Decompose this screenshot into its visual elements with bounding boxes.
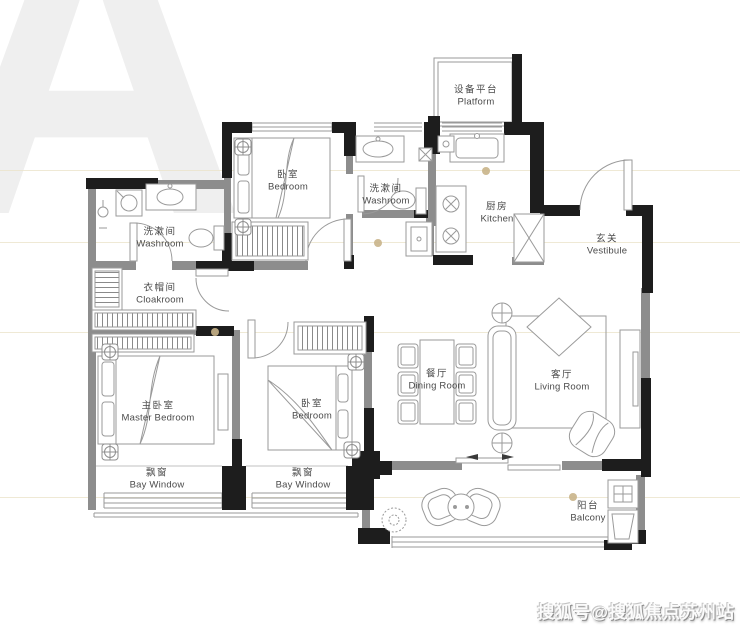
furniture-bedroom-top (232, 138, 330, 260)
room-label-bedroom-second-cn: 卧室 (292, 399, 332, 411)
room-label-bedroom-second: 卧室 Bedroom (292, 399, 332, 422)
room-label-bedroom-second-en: Bedroom (292, 410, 332, 422)
room-label-bedroom-top-cn: 卧室 (268, 170, 308, 182)
room-label-dining-room: 餐厅 Dining Room (408, 369, 465, 392)
room-label-platform-cn: 设备平台 (454, 85, 498, 97)
room-label-master-bedroom-en: Master Bedroom (121, 412, 194, 424)
room-label-bay-window-right-cn: 飘窗 (276, 468, 331, 480)
furniture-bedroom-second (268, 322, 366, 458)
room-label-dining-room-cn: 餐厅 (408, 369, 465, 381)
room-label-balcony-cn: 阳台 (570, 501, 605, 513)
room-label-master-bedroom-cn: 主卧室 (121, 401, 194, 413)
room-label-vestibule: 玄关 Vestibule (587, 234, 627, 257)
floor-plan-page: A (0, 0, 740, 629)
room-label-living-room-cn: 客厅 (534, 370, 589, 382)
room-label-bay-window-left: 飘窗 Bay Window (130, 468, 185, 491)
room-label-washroom-mid-en: Washroom (362, 195, 409, 207)
room-label-washroom-mid: 洗漱间 Washroom (362, 184, 409, 207)
room-label-platform: 设备平台 Platform (454, 85, 498, 108)
room-label-dining-room-en: Dining Room (408, 380, 465, 392)
room-label-cloakroom-cn: 衣帽间 (136, 283, 184, 295)
room-label-cloakroom-en: Cloakroom (136, 294, 184, 306)
room-label-vestibule-en: Vestibule (587, 245, 627, 257)
room-label-bedroom-top-en: Bedroom (268, 181, 308, 193)
room-label-kitchen: 厨房 Kitchen (480, 202, 513, 225)
room-label-vestibule-cn: 玄关 (587, 234, 627, 246)
room-label-kitchen-en: Kitchen (480, 213, 513, 225)
room-label-washroom-left-cn: 洗漱间 (136, 227, 183, 239)
room-label-balcony: 阳台 Balcony (570, 501, 605, 524)
room-label-balcony-en: Balcony (570, 512, 605, 524)
credit-watermark: 搜狐号@搜狐焦点苏州站 (537, 598, 735, 623)
room-label-cloakroom: 衣帽间 Cloakroom (136, 283, 184, 306)
room-label-bay-window-right-en: Bay Window (276, 479, 331, 491)
room-label-bay-window-left-en: Bay Window (130, 479, 185, 491)
room-label-bedroom-top: 卧室 Bedroom (268, 170, 308, 193)
room-label-bay-window-right: 飘窗 Bay Window (276, 468, 331, 491)
room-label-kitchen-cn: 厨房 (480, 202, 513, 214)
room-label-living-room-en: Living Room (534, 381, 589, 393)
furniture-master-bedroom (92, 334, 228, 460)
floor-plan-drawing (0, 0, 740, 629)
room-label-bay-window-left-cn: 飘窗 (130, 468, 185, 480)
room-label-washroom-left: 洗漱间 Washroom (136, 227, 183, 250)
room-label-platform-en: Platform (454, 96, 498, 108)
room-label-master-bedroom: 主卧室 Master Bedroom (121, 401, 194, 424)
room-label-living-room: 客厅 Living Room (534, 370, 589, 393)
room-label-washroom-left-en: Washroom (136, 238, 183, 250)
room-label-washroom-mid-cn: 洗漱间 (362, 184, 409, 196)
